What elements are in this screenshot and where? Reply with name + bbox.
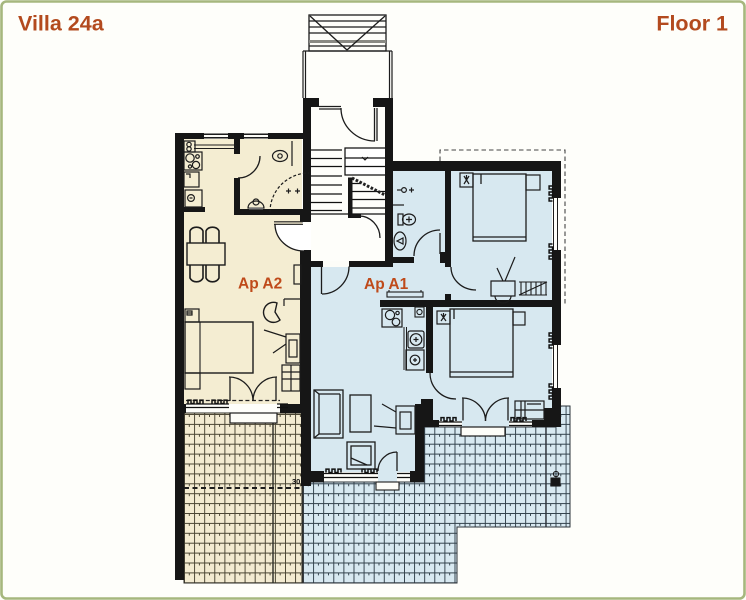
svg-text:30: 30 — [292, 477, 300, 486]
svg-text:Villa 24a: Villa 24a — [18, 12, 105, 36]
svg-text:Floor 1: Floor 1 — [656, 12, 728, 36]
svg-text:Ap A1: Ap A1 — [364, 276, 409, 293]
svg-text:Ap A2: Ap A2 — [238, 276, 282, 293]
